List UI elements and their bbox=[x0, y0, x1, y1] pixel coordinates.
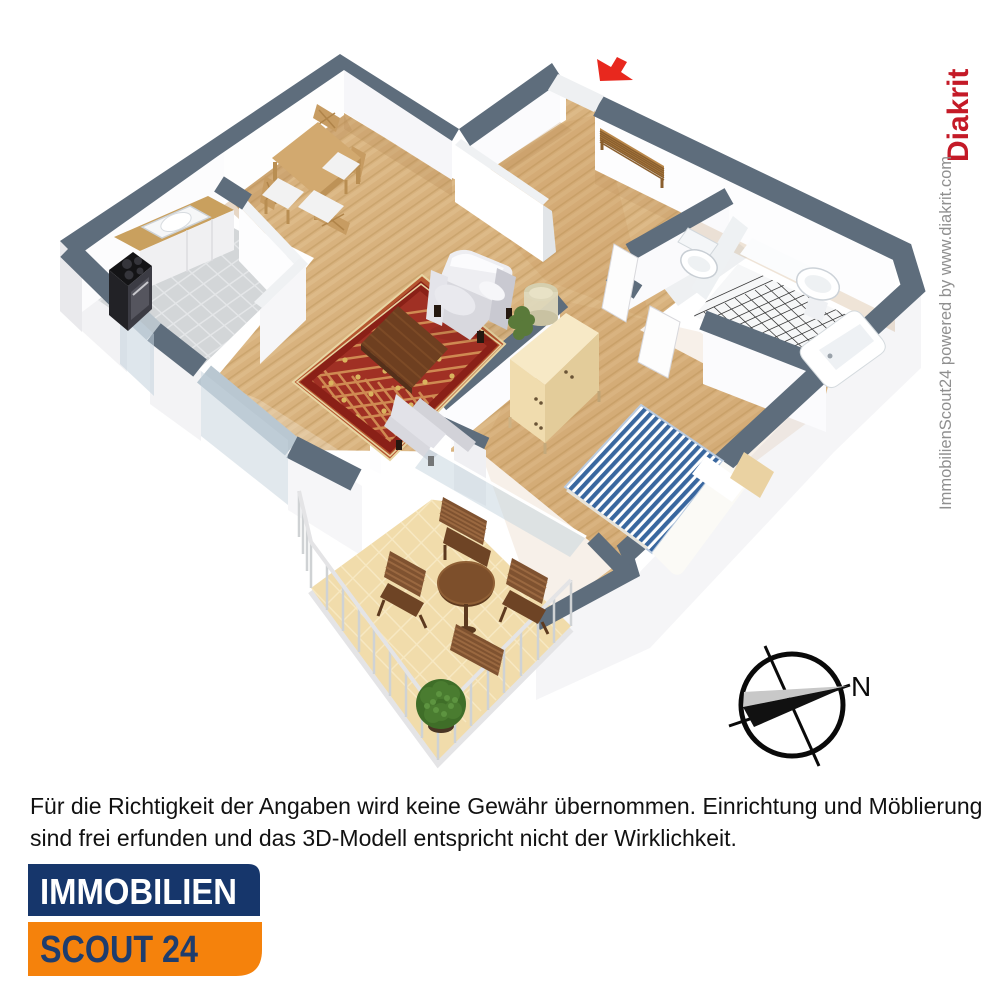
svg-text:N: N bbox=[851, 671, 871, 702]
svg-text:sind frei erfunden und das 3D-: sind frei erfunden und das 3D-Modell ent… bbox=[30, 825, 737, 851]
svg-text:SCOUT 24: SCOUT 24 bbox=[40, 929, 198, 971]
svg-text:ImmobilienScout24 powered by w: ImmobilienScout24 powered by www.diakrit… bbox=[937, 156, 955, 510]
svg-text:Für die Richtigkeit der Angabe: Für die Richtigkeit der Angaben wird kei… bbox=[30, 793, 982, 819]
svg-text:IMMOBILIEN: IMMOBILIEN bbox=[40, 871, 237, 912]
svg-text:Diakrit: Diakrit bbox=[942, 69, 975, 162]
